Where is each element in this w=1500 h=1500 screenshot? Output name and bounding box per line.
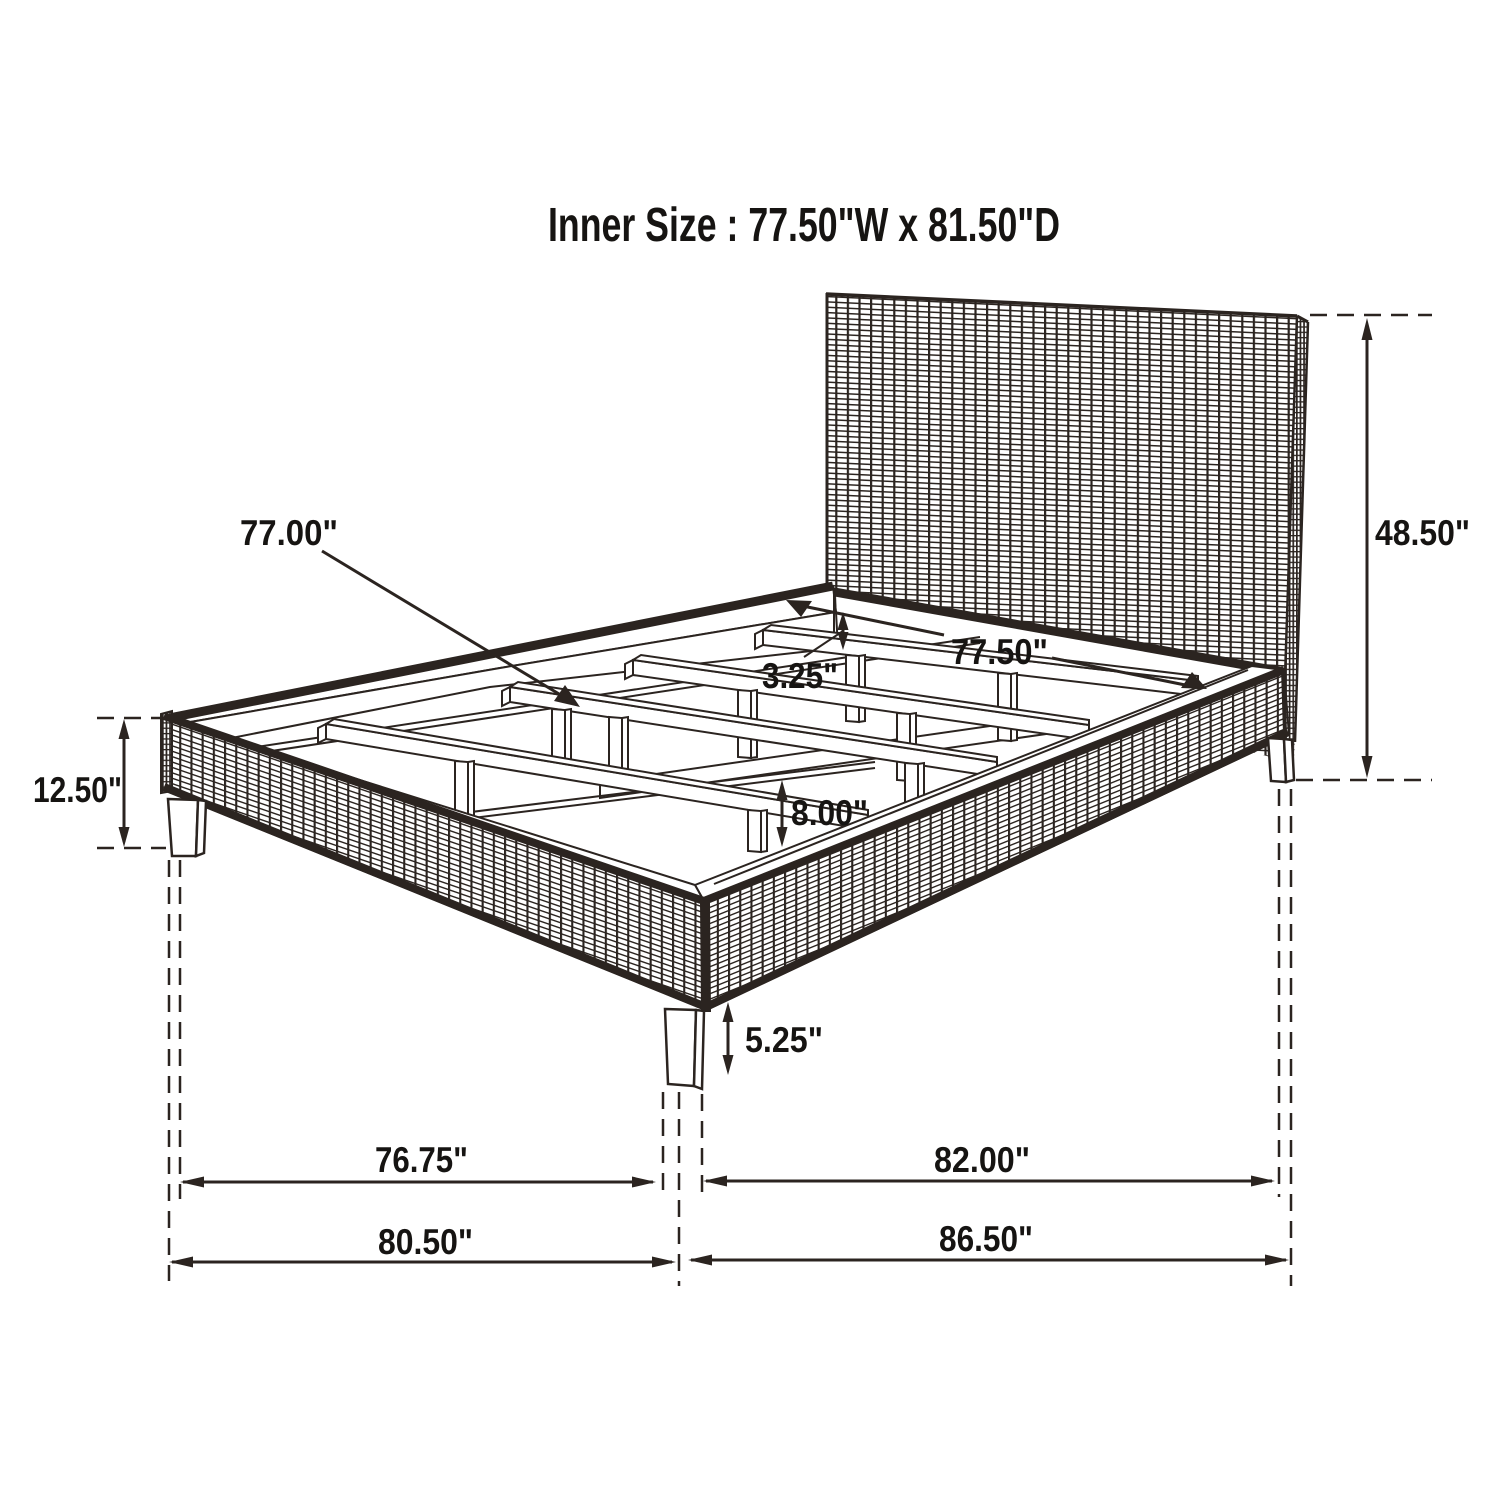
svg-text:77.00": 77.00" [240,512,338,553]
svg-text:82.00": 82.00" [934,1139,1030,1180]
svg-text:Inner Size : 77.50"W x 81.50": Inner Size : 77.50"W x 81.50"D [548,199,1060,252]
svg-text:5.25": 5.25" [745,1019,823,1060]
svg-text:86.50": 86.50" [939,1218,1033,1259]
svg-text:3.25": 3.25" [762,655,838,696]
svg-text:12.50": 12.50" [33,769,122,810]
svg-text:76.75": 76.75" [375,1139,468,1180]
svg-text:77.50": 77.50" [951,631,1048,672]
svg-text:48.50": 48.50" [1375,512,1470,553]
svg-text:8.00": 8.00" [791,792,868,833]
svg-text:80.50": 80.50" [378,1221,473,1262]
